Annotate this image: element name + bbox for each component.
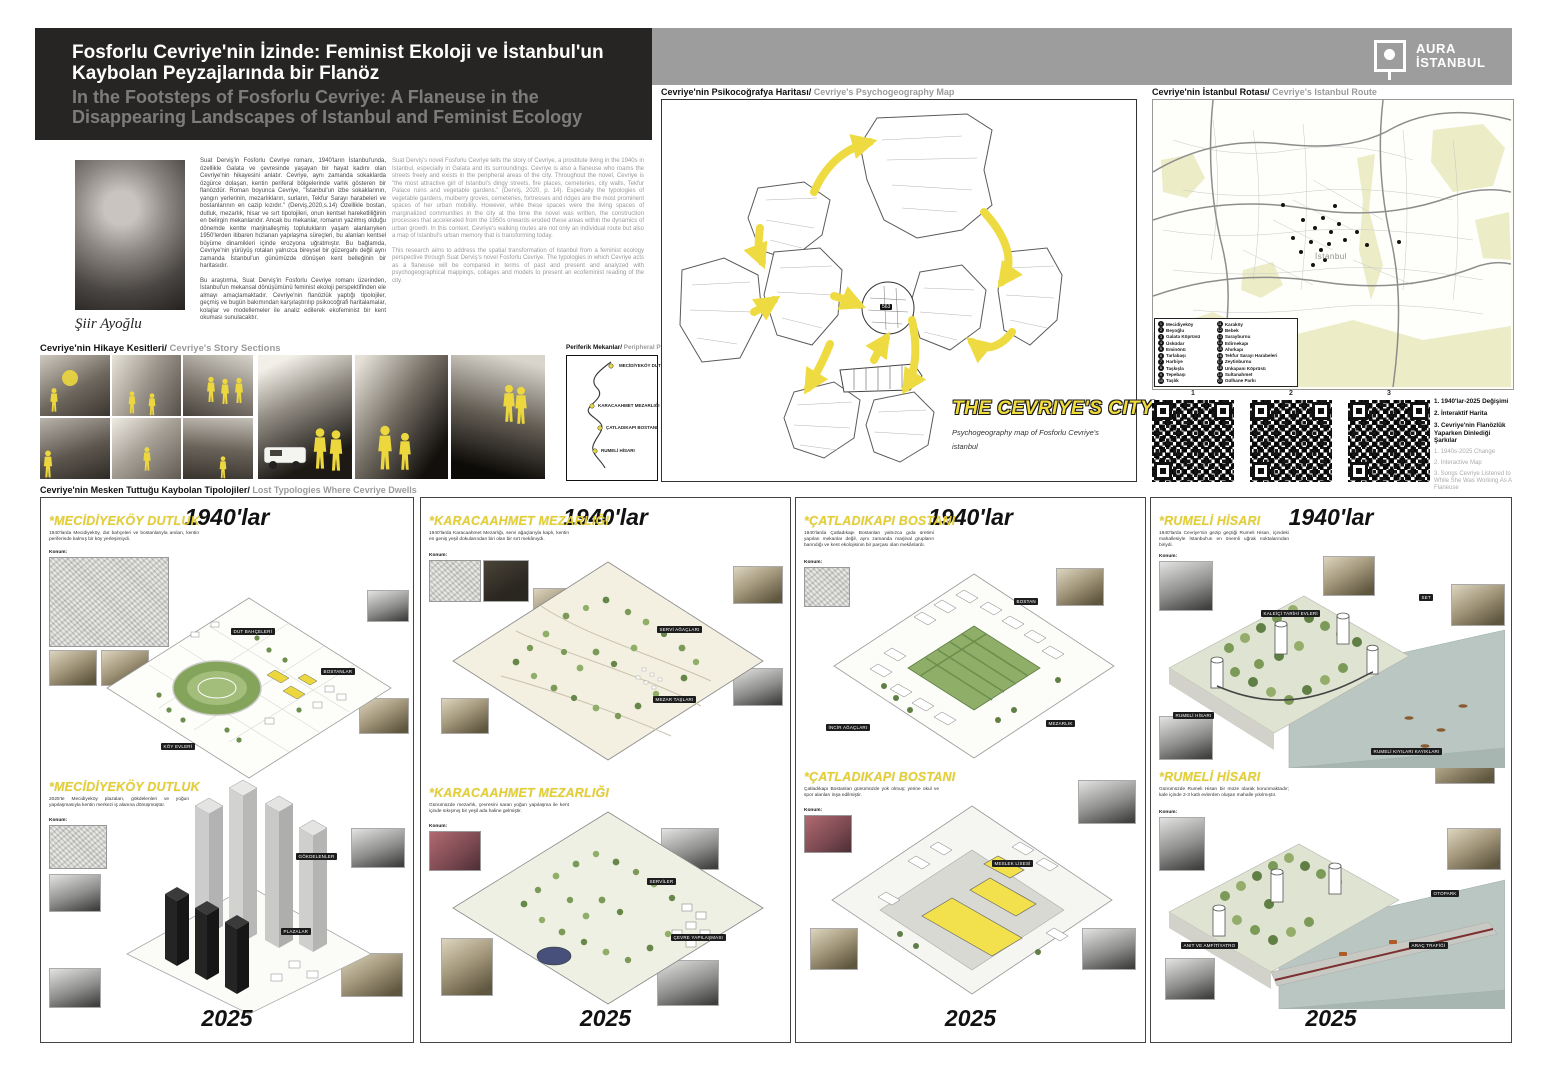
axonometric-2025 bbox=[446, 808, 771, 1013]
panel-title-1940: *ÇATLADIKAPI BOSTANI bbox=[804, 514, 955, 528]
intro-turkish-column: Suat Derviş'in Fosforlu Cevriye romanı, … bbox=[200, 158, 386, 323]
cevriyes-city-title: THE CEVRIYE'S CITY bbox=[952, 398, 1153, 420]
aura-istanbul-logo: AURAİSTANBUL bbox=[1374, 40, 1514, 80]
qr-labels: 1. 1940'lar-2025 Değişimi 2. İnteraktif … bbox=[1434, 398, 1514, 496]
psychogeography-label: Cevriye'nin Psikocoğrafya Haritası/ Cevr… bbox=[661, 87, 954, 97]
collage-photo bbox=[183, 355, 253, 416]
collage-photo bbox=[258, 355, 352, 479]
location-map-thumb bbox=[49, 825, 107, 869]
panel-title-1940: *RUMELİ HİSARI bbox=[1159, 514, 1260, 528]
collage-photo bbox=[451, 355, 545, 479]
callout-chip: MEZAR TAŞLARI bbox=[653, 696, 696, 703]
callout-chip: BOSTAN bbox=[1014, 598, 1038, 605]
callout-chip: PLAZALAR bbox=[281, 928, 311, 935]
collage-photo bbox=[40, 355, 110, 416]
callout-chip: RUMELİ KIYILARI KAYIKLARI bbox=[1371, 748, 1442, 755]
era-label-2025: 2025 bbox=[1151, 1005, 1511, 1032]
story-collage-left bbox=[40, 355, 253, 479]
callout-chip: SERVİLER bbox=[647, 878, 676, 885]
story-collage-right bbox=[258, 355, 545, 479]
peripheral-route-box: MECİDİYEKÖY DUTLUK KARACAAHMET MEZARLIĞI… bbox=[566, 355, 658, 481]
qr-number: 1 bbox=[1191, 390, 1195, 397]
callout-chip: ANIT VE AMFİTİYATRO bbox=[1181, 942, 1238, 949]
poster-title-tr: Fosforlu Cevriye'nin İzinde: Feminist Ek… bbox=[72, 42, 642, 85]
panel-mecidiyekoy-dutluk: 1940'lar *MECİDİYEKÖY DUTLUK 1940'larda … bbox=[40, 497, 414, 1043]
axonometric-2025 bbox=[1159, 814, 1505, 1009]
callout-chip: RUMELİ HİSARI bbox=[1173, 712, 1214, 719]
peripheral-stop: ÇATLADIKAPI BOSTANI bbox=[606, 425, 657, 430]
callout-chip: MESLEK LİSESİ bbox=[992, 860, 1033, 867]
collage-photo bbox=[355, 355, 449, 479]
callout-chip: SET bbox=[1419, 594, 1433, 601]
callout-chip: OTOPARK bbox=[1431, 890, 1459, 897]
callout-chip: GÖKDELENLER bbox=[296, 853, 337, 860]
logo-stem-icon bbox=[1388, 71, 1391, 80]
poster: Fosforlu Cevriye'nin İzinde: Feminist Ek… bbox=[0, 0, 1542, 1079]
collage-photo bbox=[183, 418, 253, 479]
route-map-city-label: İstanbul bbox=[1315, 252, 1347, 261]
era-label-2025: 2025 bbox=[796, 1005, 1145, 1032]
callout-chip: KALEİÇİ TARİHİ EVLERİ bbox=[1261, 610, 1320, 617]
callout-chip: SERVİ AĞAÇLARI bbox=[657, 626, 702, 633]
psychogeography-map-box: 563 bbox=[661, 99, 1137, 482]
panel-title-1940: *MECİDİYEKÖY DUTLUK bbox=[49, 514, 200, 528]
qr-code-3 bbox=[1348, 400, 1430, 482]
intro-english-column: Suat Derviş's novel Fosforlu Cevriye tel… bbox=[392, 158, 644, 285]
panel-catladikapi-bostani: 1940'lar *ÇATLADIKAPI BOSTANI 1940'larda… bbox=[795, 497, 1146, 1043]
logo-text: AURAİSTANBUL bbox=[1416, 42, 1486, 69]
istanbul-route-label: Cevriye'nin İstanbul Rotası/ Cevriye's I… bbox=[1152, 87, 1377, 97]
panel-karacaahmet-mezarligi: 1940'lar *KARACAAHMET MEZARLIĞI 1940'lar… bbox=[420, 497, 791, 1043]
callout-chip: KÖY EVLERİ bbox=[161, 743, 195, 750]
cevriyes-city-subtitle: Psychogeography map of Fosforlu Cevriye'… bbox=[952, 426, 1112, 455]
legend-item: 20Gülhane Parkı bbox=[1217, 378, 1294, 384]
era-label-2025: 2025 bbox=[421, 1005, 790, 1032]
axonometric-1940 bbox=[99, 590, 399, 780]
peripheral-places-label: Periferik Mekanlar/ Peripheral Places bbox=[566, 344, 676, 351]
panel-title-1940: *KARACAAHMET MEZARLIĞI bbox=[429, 514, 609, 528]
reference-photo bbox=[49, 874, 101, 912]
axonometric-2025 bbox=[824, 798, 1119, 1013]
psychogeography-map bbox=[662, 100, 1134, 479]
qr-number: 3 bbox=[1387, 390, 1391, 397]
peripheral-stop: RUMELİ HİSARI bbox=[601, 448, 635, 453]
collage-photo bbox=[112, 355, 182, 416]
reference-photo bbox=[49, 968, 101, 1008]
era-label-2025: 2025 bbox=[41, 1005, 413, 1032]
title-block: Fosforlu Cevriye'nin İzinde: Feminist Ek… bbox=[35, 28, 652, 140]
axonometric-1940 bbox=[446, 556, 771, 771]
callout-chip: ARAÇ TRAFİĞİ bbox=[1409, 942, 1448, 949]
callout-chip: İNCİR AĞAÇLARI bbox=[826, 724, 870, 731]
axonometric-2025 bbox=[119, 766, 379, 1016]
map-inset-label: 563 bbox=[880, 304, 892, 310]
collage-photo bbox=[40, 418, 110, 479]
callout-chip: DUT BAHÇELERİ bbox=[231, 628, 275, 635]
panel-rumeli-hisari: 1940'lar *RUMELİ HİSARI 1940'larda Cevri… bbox=[1150, 497, 1512, 1043]
callout-chip: MEZARLIK bbox=[1046, 720, 1075, 727]
legend-item: 10Taşlık bbox=[1158, 378, 1217, 384]
panel-title-2025: *KARACAAHMET MEZARLIĞI bbox=[429, 786, 609, 800]
reference-photo bbox=[49, 650, 97, 686]
panel-title-2025: *ÇATLADIKAPI BOSTANI bbox=[804, 770, 955, 784]
qr-code-1 bbox=[1152, 400, 1234, 482]
author-photo bbox=[75, 160, 185, 310]
callout-chip: BOSTANLAR bbox=[321, 668, 355, 675]
route-map-legend: 1Mecidiyeköy 2Beyoğlu 3Galata Köprüsü 4Ü… bbox=[1154, 318, 1298, 387]
author-name: Şiir Ayoğlu bbox=[75, 316, 142, 333]
typologies-label: Cevriye'nin Mesken Tuttuğu Kaybolan Tipo… bbox=[40, 485, 417, 495]
axonometric-1940 bbox=[826, 568, 1121, 768]
poster-title-en: In the Footsteps of Fosforlu Cevriye: A … bbox=[72, 87, 642, 127]
qr-number: 2 bbox=[1289, 390, 1293, 397]
peripheral-stop: KARACAAHMET MEZARLIĞI bbox=[598, 403, 660, 408]
collage-photo bbox=[112, 418, 182, 479]
callout-chip: ÇEVRE YAPILAŞMASI bbox=[671, 934, 726, 941]
qr-code-2 bbox=[1250, 400, 1332, 482]
axonometric-1940 bbox=[1159, 568, 1505, 768]
peripheral-route-map bbox=[567, 356, 655, 477]
story-sections-label: Cevriye'nin Hikaye Kesitleri/ Cevriye's … bbox=[40, 343, 281, 354]
logo-dot-icon bbox=[1384, 49, 1395, 60]
panel-title-2025: *RUMELİ HİSARI bbox=[1159, 770, 1260, 784]
